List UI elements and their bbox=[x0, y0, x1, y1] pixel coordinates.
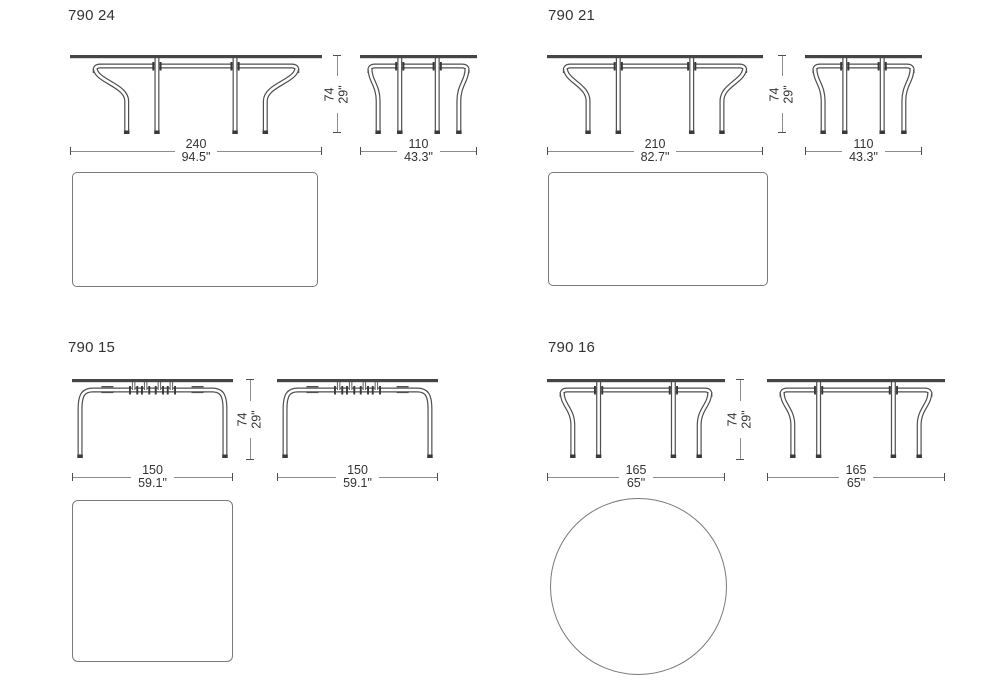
rail-clamp bbox=[174, 386, 176, 395]
rail-clamp bbox=[694, 62, 696, 71]
dim-line bbox=[548, 151, 634, 152]
dim-line bbox=[782, 56, 783, 76]
rail-clamp bbox=[878, 62, 880, 71]
dim-value-inch: 29" bbox=[337, 85, 351, 103]
dim-value-cm: 74 bbox=[324, 87, 338, 101]
dim-line bbox=[653, 477, 724, 478]
dim-line bbox=[250, 380, 251, 401]
rail-clamp bbox=[136, 386, 138, 395]
dim-text: 7429" bbox=[769, 85, 796, 103]
dim-value-inch: 43.3" bbox=[404, 151, 433, 165]
rail-clamp bbox=[379, 386, 381, 395]
dim-value-cm: 165 bbox=[846, 464, 867, 478]
rail-clamp bbox=[148, 386, 150, 395]
rail-clamp bbox=[885, 62, 887, 71]
leg-foot bbox=[232, 131, 238, 135]
dim-tick bbox=[736, 459, 744, 460]
dim-tick bbox=[944, 473, 945, 481]
leg-foot bbox=[427, 455, 433, 459]
dim-text: 7429" bbox=[324, 85, 351, 103]
tabletop bbox=[805, 55, 922, 58]
dim-text: 16565" bbox=[839, 464, 874, 491]
rail-clamp bbox=[395, 62, 397, 71]
dim-tick bbox=[232, 473, 233, 481]
dim-value-cm: 150 bbox=[347, 464, 368, 478]
plan-view-790-16 bbox=[550, 498, 727, 675]
frame-tube-core bbox=[565, 68, 588, 131]
width-dimension-front-790-24: 24094.5" bbox=[70, 138, 322, 164]
leg-foot bbox=[222, 455, 228, 459]
leg-foot bbox=[689, 131, 695, 135]
frame-tube-core bbox=[562, 390, 710, 397]
dim-value-inch: 82.7" bbox=[641, 151, 670, 165]
dim-line bbox=[740, 380, 741, 401]
leg-foot bbox=[816, 455, 822, 459]
dim-value-inch: 43.3" bbox=[849, 151, 878, 165]
rail-clamp bbox=[152, 62, 154, 71]
dim-line bbox=[676, 151, 762, 152]
dim-tick bbox=[333, 132, 341, 133]
width-dimension-side-790-15: 15059.1" bbox=[277, 464, 438, 490]
dim-line bbox=[361, 151, 397, 152]
leg-foot bbox=[879, 131, 885, 135]
dim-value-cm: 165 bbox=[626, 464, 647, 478]
leg-foot bbox=[154, 131, 160, 135]
height-dimension-790-24: 7429" bbox=[315, 55, 359, 133]
front-elevation-790-24 bbox=[70, 55, 322, 136]
rail-clamp bbox=[676, 386, 678, 395]
dimension-spec-sheet: 790 24 790 21 790 15 790 16 24094.5" 110… bbox=[0, 0, 1000, 700]
width-dimension-front-790-21: 21082.7" bbox=[547, 138, 763, 164]
rail-joint-mark bbox=[306, 386, 318, 387]
rail-joint-mark bbox=[192, 392, 204, 393]
dim-value-cm: 74 bbox=[727, 413, 741, 427]
leg-foot bbox=[891, 455, 897, 459]
tabletop bbox=[767, 379, 945, 382]
front-elevation-790-21 bbox=[547, 55, 763, 136]
dim-value-inch: 29" bbox=[740, 410, 754, 428]
leg-foot bbox=[719, 131, 725, 135]
rail-clamp bbox=[341, 386, 343, 395]
rail-clamp bbox=[840, 62, 842, 71]
dim-tick bbox=[921, 147, 922, 155]
dim-line bbox=[337, 56, 338, 76]
rail-clamp bbox=[230, 62, 232, 71]
side-elevation-790-24 bbox=[360, 55, 477, 136]
rail-clamp bbox=[821, 386, 823, 395]
tabletop bbox=[72, 379, 233, 382]
dim-value-cm: 110 bbox=[409, 138, 429, 152]
leg-foot bbox=[901, 131, 907, 135]
rail-joint-mark bbox=[192, 386, 204, 387]
side-elevation-790-16 bbox=[767, 379, 945, 460]
dim-value-inch: 94.5" bbox=[182, 151, 211, 165]
rail-clamp bbox=[669, 386, 671, 395]
dim-value-inch: 65" bbox=[847, 477, 865, 491]
tabletop bbox=[277, 379, 438, 382]
rail-joint-mark bbox=[306, 392, 318, 393]
frame-tube-core bbox=[782, 390, 930, 397]
dim-text: 15059.1" bbox=[336, 464, 379, 491]
frame-tube-core bbox=[265, 68, 297, 131]
height-dimension-790-21: 7429" bbox=[760, 55, 804, 133]
rail-clamp bbox=[621, 62, 623, 71]
dim-value-cm: 74 bbox=[769, 87, 783, 101]
model-title-790-15: 790 15 bbox=[68, 339, 115, 356]
front-elevation-790-15 bbox=[72, 379, 233, 460]
dim-tick bbox=[476, 147, 477, 155]
frame-tube-outline bbox=[285, 390, 430, 455]
frame-tube-core bbox=[95, 66, 297, 73]
dim-value-cm: 74 bbox=[237, 413, 251, 427]
dim-value-cm: 110 bbox=[854, 138, 874, 152]
dim-value-cm: 240 bbox=[186, 138, 207, 152]
width-dimension-side-790-21: 11043.3" bbox=[805, 138, 922, 164]
rail-clamp bbox=[889, 386, 891, 395]
tabletop bbox=[70, 55, 322, 58]
rail-clamp bbox=[433, 62, 435, 71]
dim-text: 7429" bbox=[237, 410, 264, 428]
dim-text: 15059.1" bbox=[131, 464, 174, 491]
leg-foot bbox=[585, 131, 591, 135]
rail-clamp bbox=[155, 386, 157, 395]
frame-tube-core bbox=[285, 390, 430, 455]
dim-text: 7429" bbox=[727, 410, 754, 428]
leg-foot bbox=[916, 455, 922, 459]
leg-foot bbox=[124, 131, 130, 135]
rail-clamp bbox=[372, 386, 374, 395]
dim-tick bbox=[321, 147, 322, 155]
rail-clamp bbox=[167, 386, 169, 395]
rail-clamp bbox=[160, 62, 162, 71]
rail-clamp bbox=[129, 386, 131, 395]
rail-clamp bbox=[141, 386, 143, 395]
dim-tick bbox=[778, 132, 786, 133]
tabletop bbox=[547, 55, 763, 58]
width-dimension-front-790-15: 15059.1" bbox=[72, 464, 233, 490]
leg-foot bbox=[77, 455, 83, 459]
frame-tube-core bbox=[565, 66, 744, 73]
dim-text: 21082.7" bbox=[634, 138, 677, 165]
dim-line bbox=[548, 477, 619, 478]
tabletop bbox=[360, 55, 477, 58]
dim-line bbox=[250, 438, 251, 459]
dim-line bbox=[440, 151, 476, 152]
rail-joint-mark bbox=[397, 392, 409, 393]
rail-clamp bbox=[238, 62, 240, 71]
leg-foot bbox=[820, 131, 826, 135]
frame-tube-core bbox=[95, 68, 127, 131]
leg-foot bbox=[596, 455, 602, 459]
dim-line bbox=[740, 438, 741, 459]
rail-joint-mark bbox=[101, 392, 113, 393]
dim-value-inch: 29" bbox=[250, 410, 264, 428]
dim-value-inch: 59.1" bbox=[138, 477, 167, 491]
rail-clamp bbox=[346, 386, 348, 395]
leg-foot bbox=[842, 131, 848, 135]
rail-clamp bbox=[614, 62, 616, 71]
dim-line bbox=[278, 477, 336, 478]
model-title-790-24: 790 24 bbox=[68, 7, 115, 24]
frame-tube-core bbox=[722, 68, 745, 131]
rail-joint-mark bbox=[397, 386, 409, 387]
rail-clamp bbox=[360, 386, 362, 395]
rail-clamp bbox=[687, 62, 689, 71]
dim-value-inch: 29" bbox=[782, 85, 796, 103]
leg-foot bbox=[671, 455, 677, 459]
rail-clamp bbox=[440, 62, 442, 71]
leg-foot bbox=[263, 131, 269, 135]
dim-line bbox=[73, 477, 131, 478]
tabletop bbox=[547, 379, 725, 382]
dim-line bbox=[873, 477, 944, 478]
dim-line bbox=[782, 113, 783, 133]
rail-clamp bbox=[367, 386, 369, 395]
dim-text: 11043.3" bbox=[842, 138, 885, 165]
leg-foot bbox=[790, 455, 796, 459]
dim-tick bbox=[724, 473, 725, 481]
leg-foot bbox=[434, 131, 440, 135]
front-elevation-790-16 bbox=[547, 379, 725, 460]
dim-line bbox=[885, 151, 921, 152]
plan-view-790-21 bbox=[548, 172, 768, 286]
dim-line bbox=[806, 151, 842, 152]
leg-foot bbox=[282, 455, 288, 459]
dim-line bbox=[217, 151, 321, 152]
dim-line bbox=[174, 477, 232, 478]
leg-foot bbox=[616, 131, 622, 135]
leg-foot bbox=[570, 455, 576, 459]
dim-line bbox=[768, 477, 839, 478]
frame-tube-outline bbox=[80, 390, 225, 455]
plan-view-790-24 bbox=[72, 172, 318, 287]
rail-joint-mark bbox=[101, 386, 113, 387]
frame-tube-core bbox=[815, 66, 912, 73]
leg-foot bbox=[696, 455, 702, 459]
rail-clamp bbox=[896, 386, 898, 395]
dim-line bbox=[337, 113, 338, 133]
dim-text: 16565" bbox=[619, 464, 654, 491]
side-elevation-790-15 bbox=[277, 379, 438, 460]
leg-foot bbox=[456, 131, 462, 135]
rail-clamp bbox=[594, 386, 596, 395]
width-dimension-front-790-16: 16565" bbox=[547, 464, 725, 490]
dim-text: 11043.3" bbox=[397, 138, 440, 165]
rail-clamp bbox=[601, 386, 603, 395]
rail-clamp bbox=[353, 386, 355, 395]
leg-foot bbox=[397, 131, 403, 135]
rail-clamp bbox=[162, 386, 164, 395]
dim-tick bbox=[762, 147, 763, 155]
rail-clamp bbox=[814, 386, 816, 395]
rail-clamp bbox=[334, 386, 336, 395]
frame-tube-core bbox=[80, 390, 225, 455]
model-title-790-16: 790 16 bbox=[548, 339, 595, 356]
dim-line bbox=[71, 151, 175, 152]
model-title-790-21: 790 21 bbox=[548, 7, 595, 24]
dim-value-inch: 65" bbox=[627, 477, 645, 491]
dim-value-cm: 150 bbox=[142, 464, 163, 478]
rail-clamp bbox=[402, 62, 404, 71]
dim-line bbox=[379, 477, 437, 478]
side-elevation-790-21 bbox=[805, 55, 922, 136]
dim-value-cm: 210 bbox=[645, 138, 666, 152]
height-dimension-790-15: 7429" bbox=[228, 379, 272, 460]
width-dimension-side-790-24: 11043.3" bbox=[360, 138, 477, 164]
leg-foot bbox=[375, 131, 381, 135]
dim-value-inch: 59.1" bbox=[343, 477, 372, 491]
dim-text: 24094.5" bbox=[175, 138, 218, 165]
dim-tick bbox=[437, 473, 438, 481]
height-dimension-790-16: 7429" bbox=[718, 379, 762, 460]
dim-tick bbox=[246, 459, 254, 460]
width-dimension-side-790-16: 16565" bbox=[767, 464, 945, 490]
plan-view-790-15 bbox=[72, 500, 233, 662]
rail-clamp bbox=[847, 62, 849, 71]
frame-tube-core bbox=[370, 66, 467, 73]
